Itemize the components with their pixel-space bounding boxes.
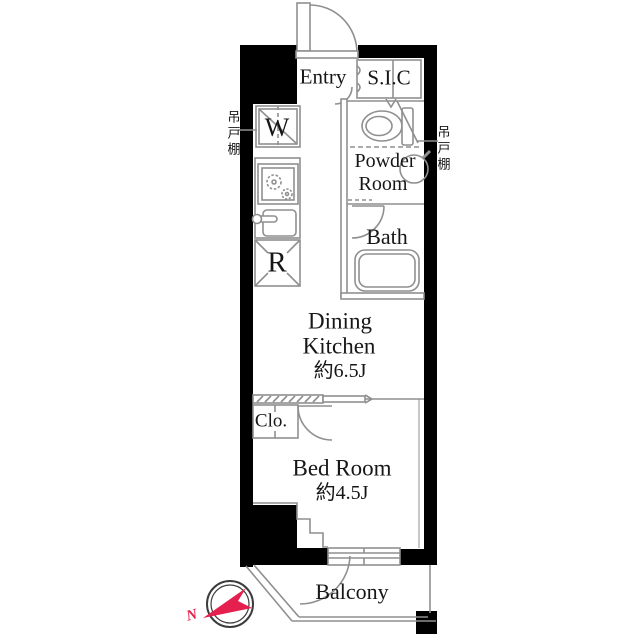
floor-plan: Entry S.I.C W R Powder Room Bath Dining … <box>0 0 640 640</box>
room-label-powder-2: Room <box>359 174 408 194</box>
wall-right <box>424 45 437 565</box>
compass-icon <box>203 581 253 627</box>
toilet-icon <box>362 108 413 145</box>
room-label-sic: S.I.C <box>367 68 410 89</box>
room-area-bedroom: 約4.5J <box>316 483 369 503</box>
wall-bottom-left-upper <box>240 505 297 550</box>
room-area-dk: 約6.5J <box>314 361 367 381</box>
entry-door-icon <box>296 3 358 104</box>
room-label-entry: Entry <box>300 67 347 88</box>
fixture-label-washer: W <box>265 115 290 141</box>
wall-bottom-left-lower <box>240 548 328 565</box>
room-label-powder-1: Powder <box>354 151 415 171</box>
room-label-bedroom: Bed Room <box>292 457 391 480</box>
balcony-pier <box>416 611 437 634</box>
fixture-label-fridge: R <box>267 249 286 278</box>
wall-left <box>240 45 253 567</box>
room-label-dk-2: Kitchen <box>303 335 376 358</box>
room-label-dk-1: Dining <box>308 310 372 333</box>
room-label-balcony: Balcony <box>315 581 388 603</box>
room-label-bath: Bath <box>366 226 408 248</box>
hanging-cupboard-label-left: 吊戸棚 <box>227 110 240 158</box>
hanging-cupboard-label-right: 吊戸棚 <box>437 125 450 173</box>
sliding-partition <box>253 395 424 403</box>
room-label-closet: Clo. <box>255 412 287 431</box>
bathtub-icon <box>355 250 419 291</box>
wall-right-foot <box>398 549 437 565</box>
